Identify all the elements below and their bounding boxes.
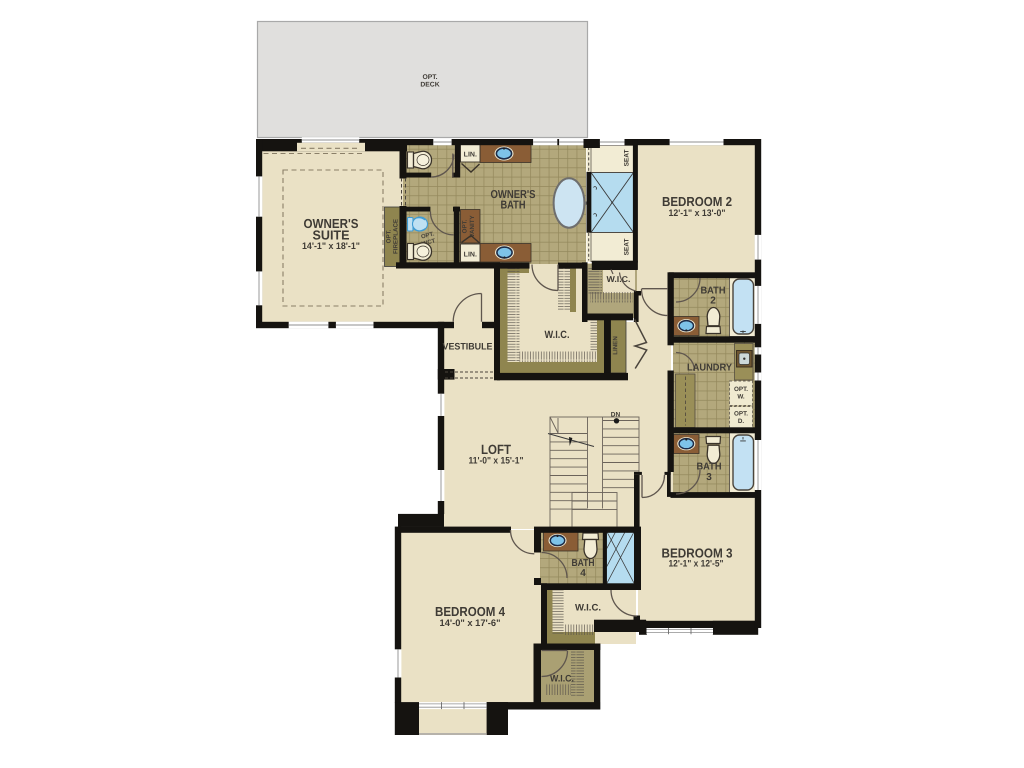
svg-text:SEAT: SEAT [624, 150, 631, 167]
svg-text:12'-1" x 13'-0": 12'-1" x 13'-0" [669, 208, 726, 219]
svg-text:W.I.C.: W.I.C. [545, 329, 570, 341]
svg-text:VANITY: VANITY [469, 215, 476, 238]
svg-text:LINEN: LINEN [612, 336, 619, 355]
svg-text:LIN.: LIN. [464, 252, 477, 259]
svg-text:BATH: BATH [501, 200, 526, 212]
svg-text:W.I.C.: W.I.C. [607, 274, 631, 284]
svg-text:OPT.: OPT. [386, 229, 393, 243]
svg-text:OPT.: OPT. [734, 411, 748, 418]
svg-text:OPT.: OPT. [422, 74, 437, 81]
svg-text:BATH: BATH [697, 462, 722, 473]
svg-text:W.: W. [737, 394, 745, 401]
svg-text:W.I.C.: W.I.C. [550, 674, 574, 685]
svg-text:12'-1" x 12'-5": 12'-1" x 12'-5" [669, 559, 724, 570]
svg-text:BEDROOM 4: BEDROOM 4 [435, 604, 506, 619]
svg-text:14'-1" x 18'-1": 14'-1" x 18'-1" [302, 241, 360, 252]
svg-text:BEDROOM 2: BEDROOM 2 [662, 194, 732, 209]
svg-text:D.: D. [738, 418, 745, 425]
svg-text:LAUNDRY: LAUNDRY [687, 363, 732, 374]
svg-text:11'-0" x 15'-1": 11'-0" x 15'-1" [469, 456, 524, 467]
svg-text:LIN.: LIN. [464, 152, 477, 159]
svg-text:FIREPLACE: FIREPLACE [393, 219, 400, 254]
svg-text:SEAT: SEAT [624, 239, 631, 256]
svg-text:OPT.: OPT. [734, 386, 748, 393]
svg-text:DECK: DECK [420, 81, 439, 88]
svg-text:14'-0" x 17'-6": 14'-0" x 17'-6" [440, 618, 501, 629]
svg-text:DN: DN [611, 412, 621, 419]
svg-text:4: 4 [580, 568, 586, 579]
svg-text:VESTIBULE: VESTIBULE [443, 342, 493, 353]
svg-text:W.I.C.: W.I.C. [575, 603, 601, 614]
svg-text:OPT.: OPT. [462, 219, 469, 233]
svg-text:3: 3 [706, 472, 712, 483]
svg-text:2: 2 [710, 296, 716, 307]
